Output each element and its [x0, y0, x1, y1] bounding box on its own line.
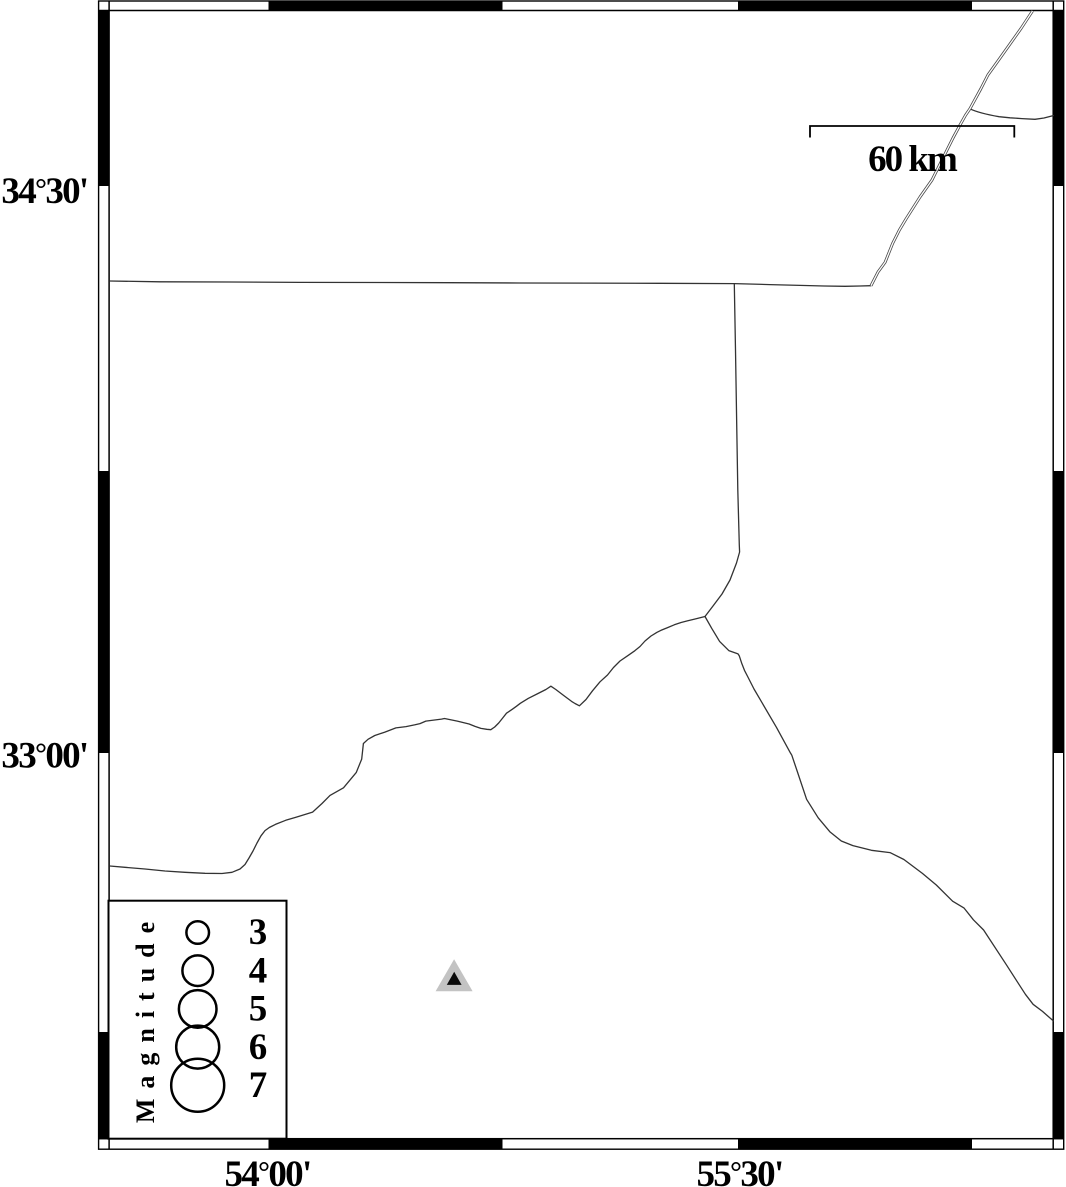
- svg-text:55°30': 55°30': [696, 1154, 782, 1187]
- svg-text:5: 5: [249, 989, 268, 1030]
- svg-text:54°00': 54°00': [224, 1154, 310, 1187]
- svg-text:34°30': 34°30': [1, 171, 87, 212]
- svg-text:6: 6: [249, 1027, 268, 1068]
- svg-text:60 km: 60 km: [868, 139, 958, 180]
- svg-text:3: 3: [249, 912, 268, 953]
- svg-text:4: 4: [249, 950, 268, 991]
- svg-text:Magnitude: Magnitude: [131, 912, 160, 1123]
- svg-text:33°00': 33°00': [1, 735, 87, 776]
- svg-text:7: 7: [249, 1065, 268, 1106]
